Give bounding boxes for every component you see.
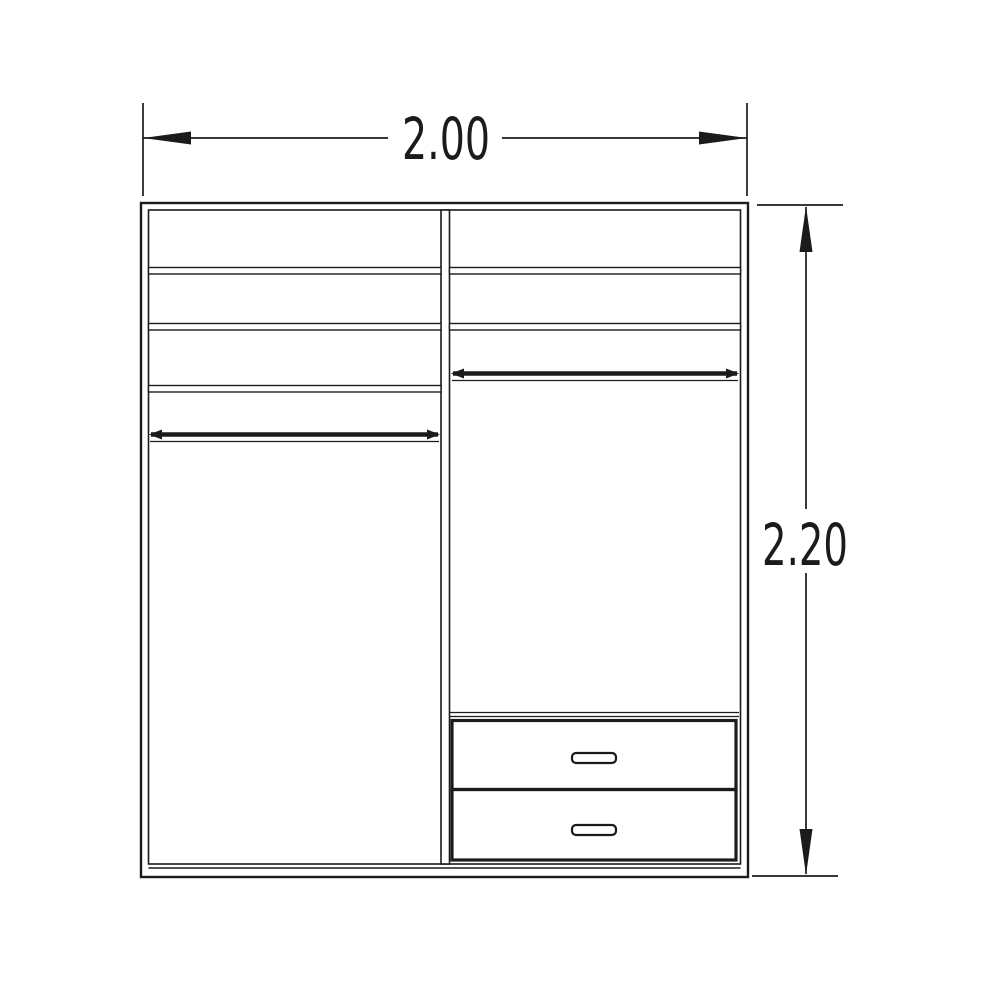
- rail-end-cap: [149, 430, 162, 440]
- left-door-panel: [149, 443, 442, 864]
- left-arrowhead-icon: [143, 132, 191, 145]
- wardrobe-technical-drawing: 2.00 2.20: [0, 0, 1000, 1000]
- height-dimension: 2.20: [752, 205, 848, 876]
- drawer-front: [452, 721, 736, 790]
- rail-end-cap: [726, 369, 739, 379]
- shelf: [149, 386, 442, 393]
- shelf: [149, 268, 442, 275]
- down-arrowhead-icon: [800, 829, 813, 875]
- shelf: [149, 324, 442, 331]
- right-arrowhead-icon: [699, 132, 747, 145]
- drawer-2: [452, 790, 736, 861]
- shelf: [450, 268, 741, 275]
- drawer-handle: [572, 825, 616, 835]
- drawer-handle: [572, 753, 616, 763]
- right-compartment: [450, 268, 741, 861]
- shelf: [450, 324, 741, 331]
- right-hanging-rail: [451, 369, 739, 381]
- up-arrowhead-icon: [800, 206, 813, 252]
- height-dimension-label: 2.20: [762, 511, 848, 579]
- wardrobe-body: [141, 203, 748, 877]
- left-compartment: [149, 268, 442, 865]
- drawer-1: [452, 721, 736, 790]
- rail-end-cap: [451, 369, 464, 379]
- left-hanging-rail: [149, 430, 440, 442]
- width-dimension: 2.00: [143, 103, 747, 196]
- width-dimension-label: 2.00: [402, 105, 490, 173]
- drawing-canvas: 2.00 2.20: [0, 0, 1000, 1000]
- center-divider-panel: [441, 210, 450, 864]
- rail-end-cap: [427, 430, 440, 440]
